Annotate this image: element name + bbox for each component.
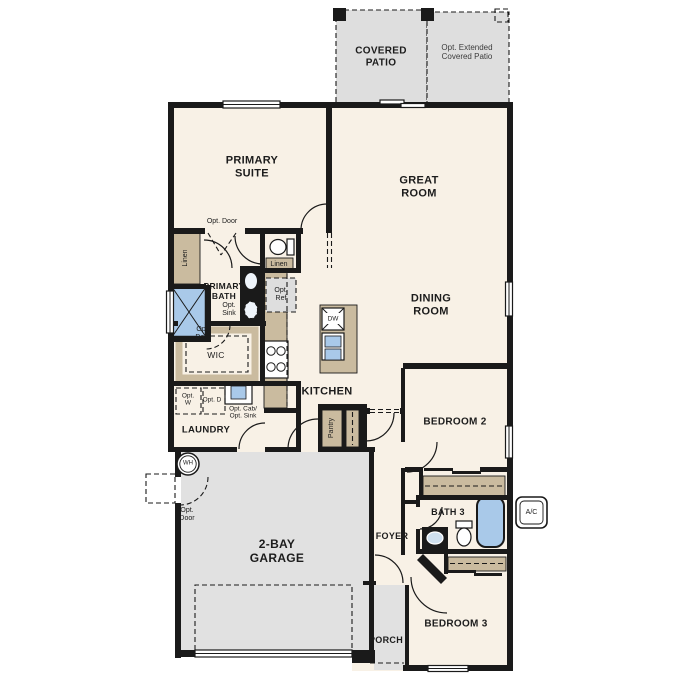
window <box>506 426 513 458</box>
room-label-primary-bath: PRIMARY BATH <box>196 282 252 302</box>
fixture-label-water-heater: WH <box>183 461 193 468</box>
room-label-bedroom2: BEDROOM 2 <box>423 416 486 428</box>
room-label-foyer: FOYER <box>376 531 409 541</box>
room-label-porch: PORCH <box>369 635 403 645</box>
room-label-bath3: BATH 3 <box>431 507 465 517</box>
window <box>223 101 280 108</box>
room-label-dining-room: DINING ROOM <box>400 292 462 317</box>
floor-plan-graphic <box>0 0 687 687</box>
window <box>167 291 174 333</box>
annotation-pantry: Pantry <box>328 418 336 438</box>
stove-icon <box>264 341 288 378</box>
annotation-opt-door-suite: Opt. Door <box>207 218 237 226</box>
bath3-vanity-icon <box>422 527 448 549</box>
bathtub-icon <box>477 497 504 547</box>
annotation-linen-1: Linen <box>182 249 190 266</box>
annotation-opt-cab-sink: Opt. Cab/ Opt. Sink <box>223 406 263 421</box>
window <box>428 666 468 672</box>
fixture-label-dishwasher: DW <box>328 315 339 322</box>
porch-floor <box>374 585 405 670</box>
annotation-opt-sink: Opt. Sink <box>216 302 242 318</box>
room-label-wic: WIC <box>207 351 224 361</box>
room-label-opt-extended-patio: Opt. Extended Covered Patio <box>427 43 507 61</box>
annotation-opt-washer: Opt. W <box>178 393 198 408</box>
window <box>506 282 513 316</box>
island-sink-icon <box>322 333 344 360</box>
room-label-garage: 2-BAY GARAGE <box>237 538 317 566</box>
patio-post <box>333 8 346 21</box>
annotation-opt-door-garage: Opt. Door <box>174 507 200 523</box>
floor-plan: COVERED PATIO Opt. Extended Covered Pati… <box>0 0 687 687</box>
annotation-linen-2: Linen <box>270 260 287 268</box>
garage-door-opening <box>195 650 352 657</box>
annotation-opt-dryer: Opt. D <box>202 396 222 403</box>
patio-post <box>421 8 434 21</box>
room-label-laundry: LAUNDRY <box>182 426 230 437</box>
room-label-great-room: GREAT ROOM <box>388 174 450 199</box>
room-label-kitchen: KITCHEN <box>302 386 353 399</box>
annotation-opt-door-wic: Opt. Door <box>190 326 216 342</box>
opt-door-opening <box>175 477 181 503</box>
bath3-toilet-icon <box>456 521 472 546</box>
room-label-bedroom3: BEDROOM 3 <box>424 618 487 630</box>
toilet-icon <box>270 239 294 255</box>
annotation-opt-ref: Opt. Ref <box>269 287 293 303</box>
room-label-primary-suite: PRIMARY SUITE <box>212 154 292 179</box>
room-label-covered-patio: COVERED PATIO <box>345 46 417 69</box>
fixture-label-ac: A/C <box>526 508 538 516</box>
